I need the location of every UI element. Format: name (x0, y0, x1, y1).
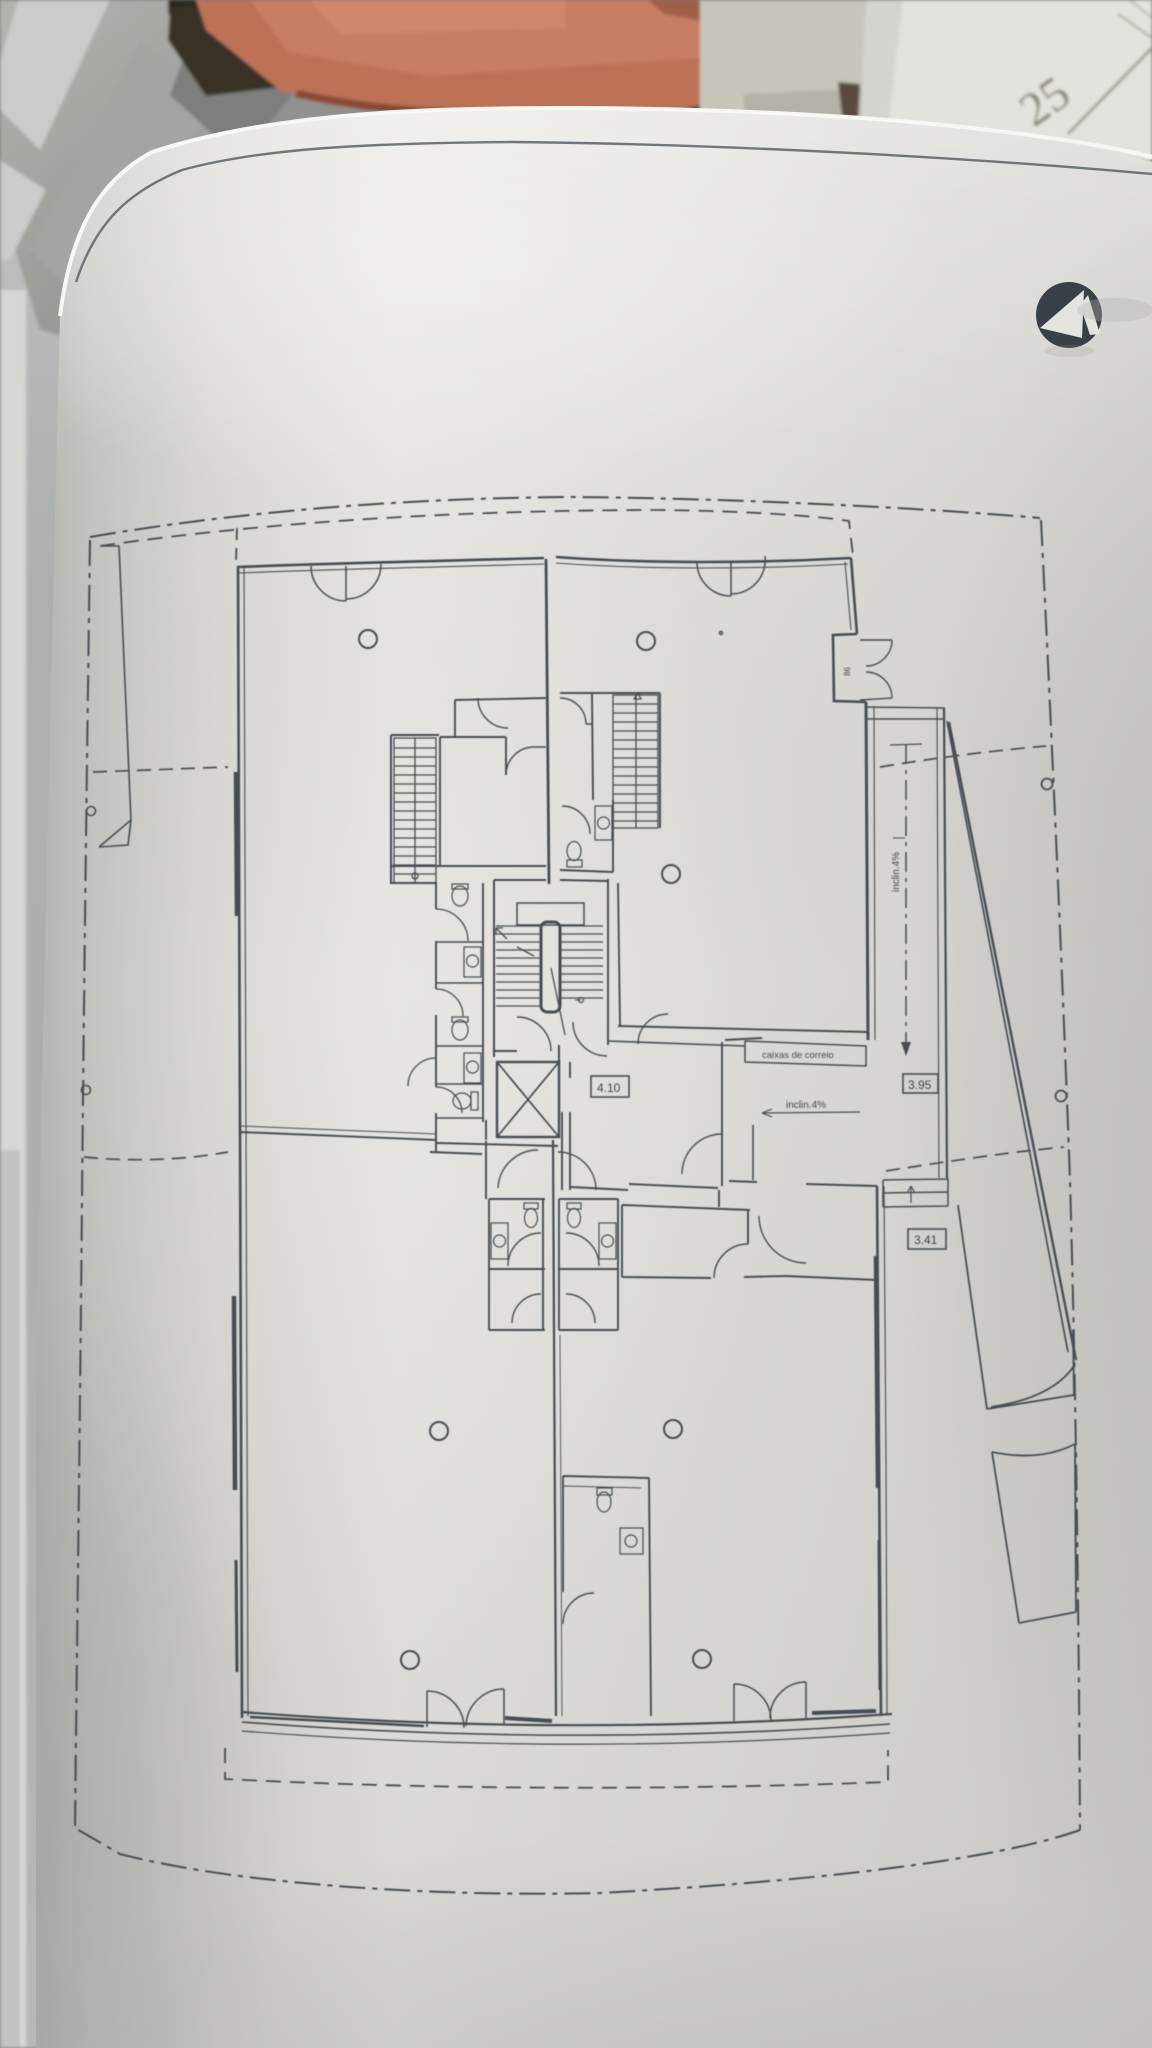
svg-text:3.41: 3.41 (914, 1233, 938, 1247)
svg-text:86: 86 (843, 667, 852, 676)
svg-text:inclin.4%: inclin.4% (786, 1100, 826, 1111)
svg-text:caixas de correio: caixas de correio (762, 1050, 834, 1061)
svg-text:3.95: 3.95 (908, 1078, 932, 1092)
svg-text:inclin.4%: inclin.4% (891, 852, 902, 892)
svg-text:4.10: 4.10 (597, 1081, 621, 1095)
